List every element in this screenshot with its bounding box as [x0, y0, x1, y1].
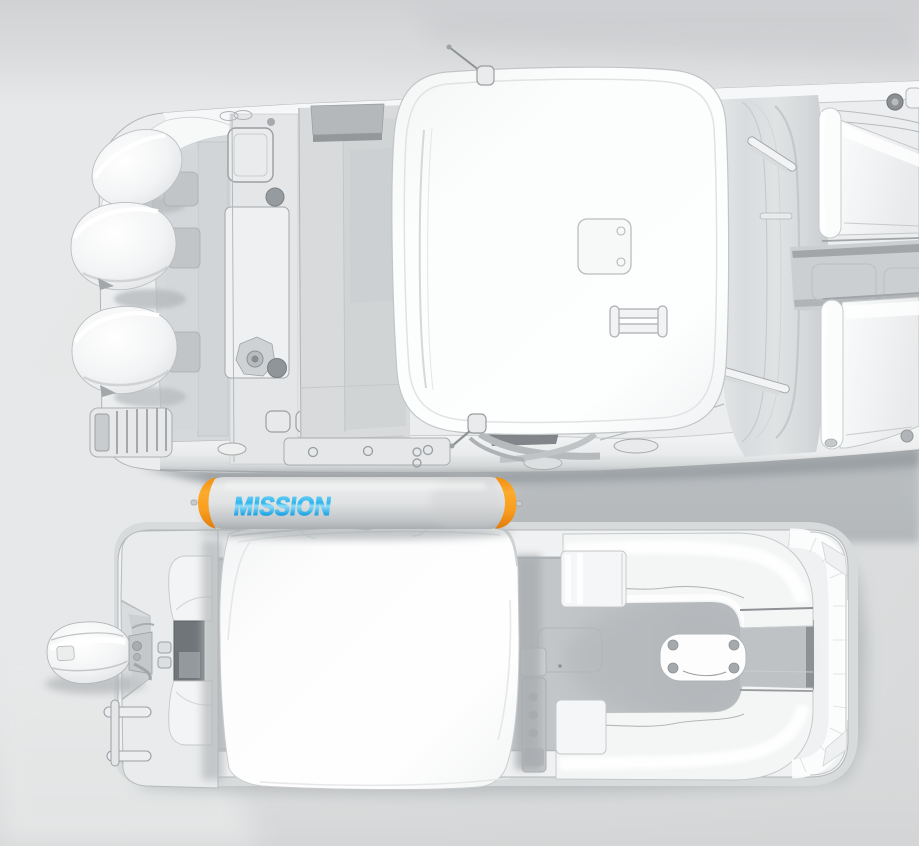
- svg-text:MISSION: MISSION: [232, 491, 333, 521]
